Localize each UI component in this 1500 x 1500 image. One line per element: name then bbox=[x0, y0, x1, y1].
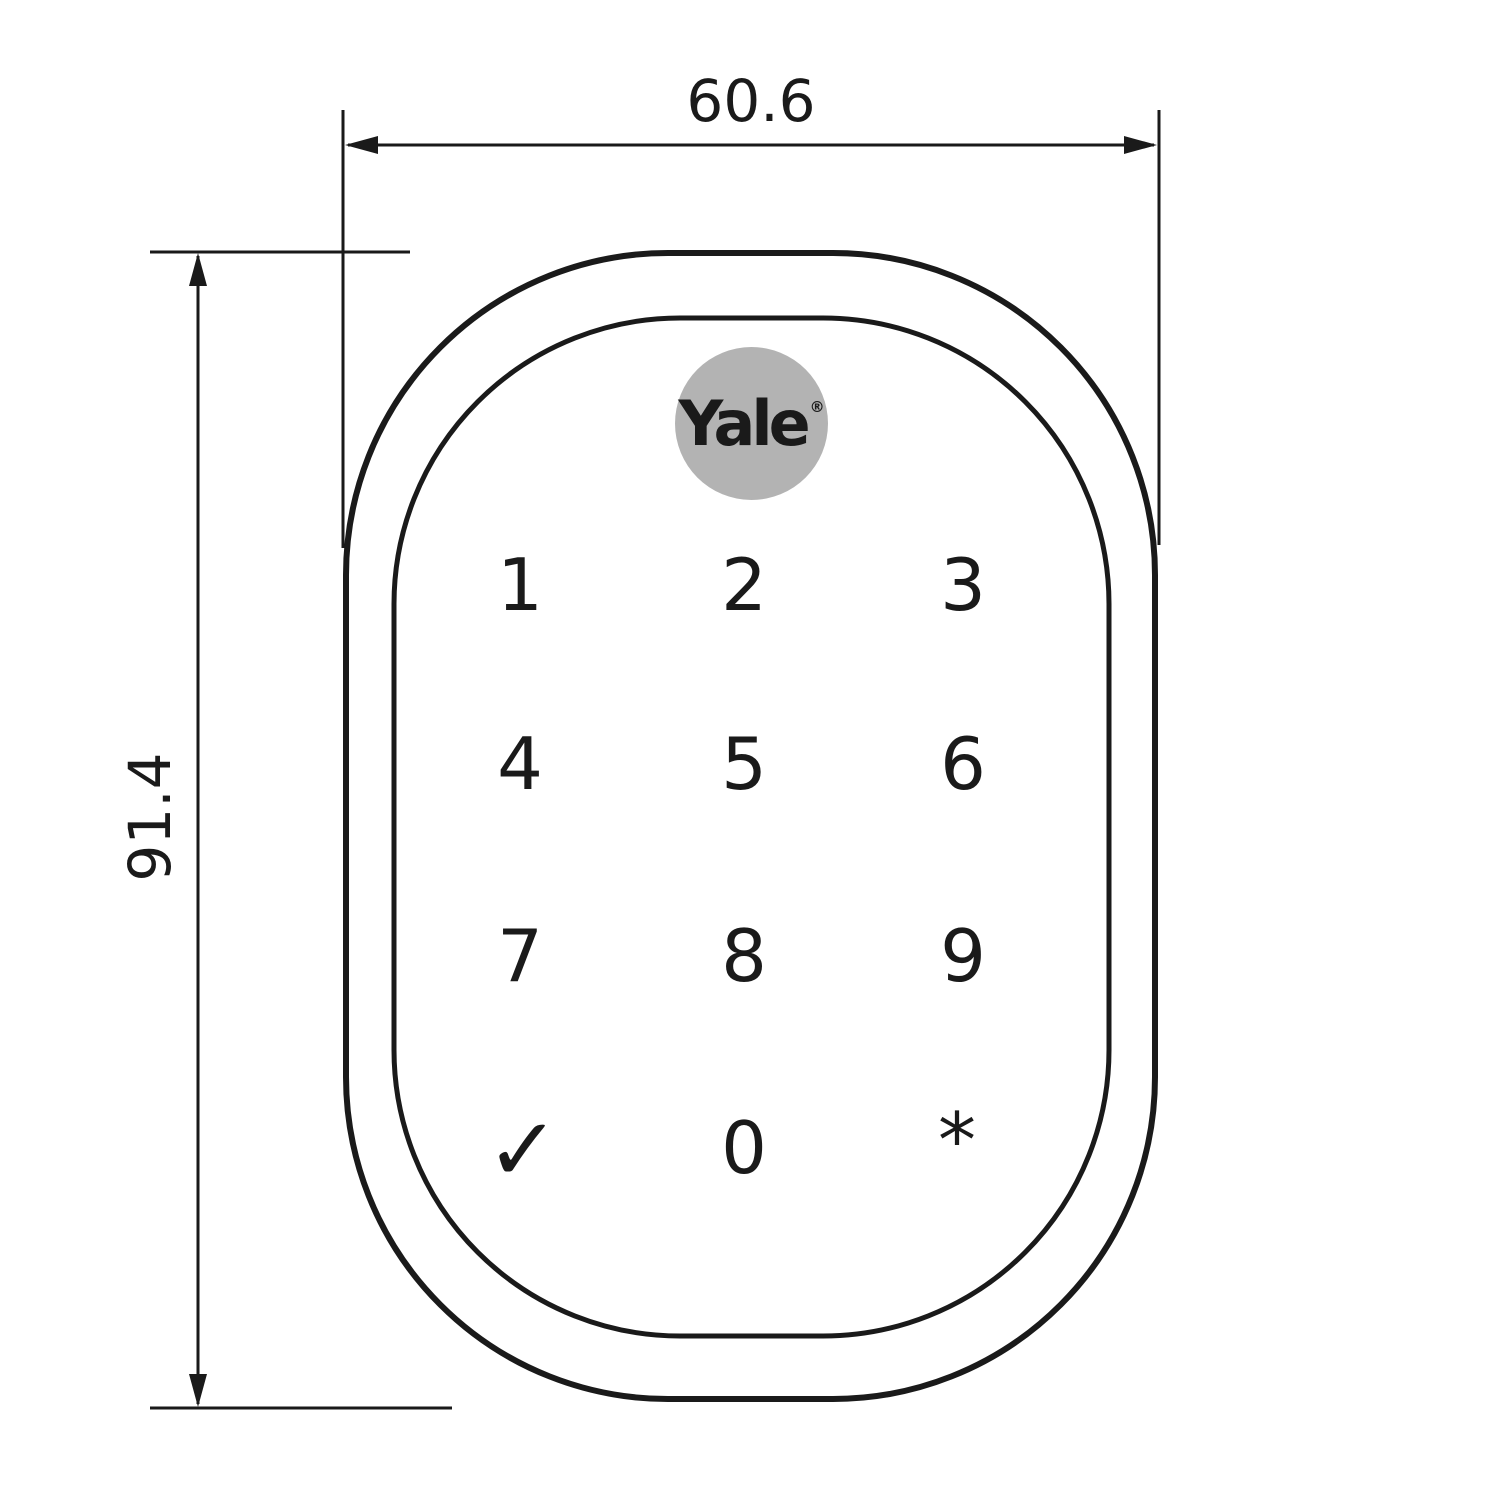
height-arrow-up-icon bbox=[189, 253, 207, 286]
key-2: 2 bbox=[721, 549, 767, 621]
height-dimension-value: 91.4 bbox=[116, 752, 184, 881]
dimension-drawing: 60.6 91.4 Yale ® 1 2 3 4 5 6 7 8 9 ✓ 0 * bbox=[0, 0, 1500, 1500]
key-check: ✓ bbox=[486, 1106, 560, 1194]
height-arrow-down-icon bbox=[189, 1374, 207, 1407]
registered-trademark-icon: ® bbox=[810, 398, 825, 416]
key-9: 9 bbox=[940, 920, 986, 992]
width-arrow-left-icon bbox=[345, 136, 378, 154]
key-3: 3 bbox=[940, 549, 986, 621]
yale-logo: Yale ® bbox=[675, 347, 828, 500]
key-asterisk: * bbox=[938, 1102, 976, 1178]
yale-logo-text: Yale bbox=[678, 393, 806, 455]
width-arrow-right-icon bbox=[1124, 136, 1157, 154]
key-8: 8 bbox=[721, 920, 767, 992]
key-5: 5 bbox=[721, 728, 767, 800]
key-7: 7 bbox=[497, 920, 543, 992]
width-dimension-value: 60.6 bbox=[686, 67, 815, 135]
key-6: 6 bbox=[940, 728, 986, 800]
key-0: 0 bbox=[721, 1112, 767, 1184]
key-4: 4 bbox=[497, 728, 543, 800]
key-1: 1 bbox=[497, 549, 543, 621]
